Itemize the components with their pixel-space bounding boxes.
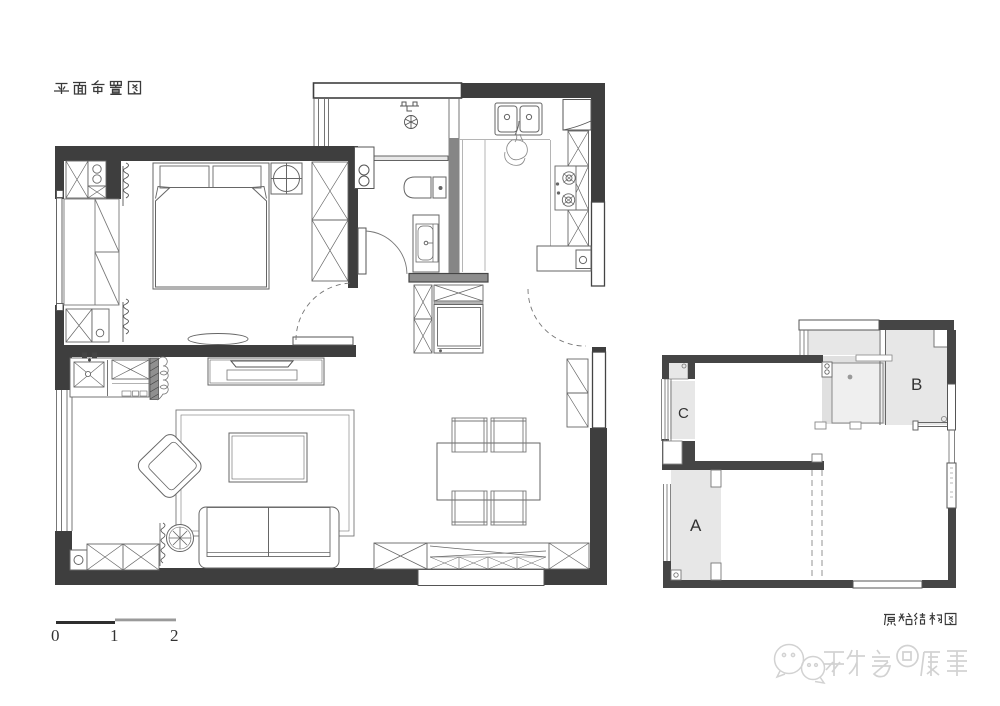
svg-text:C: C	[678, 405, 689, 422]
svg-text:1: 1	[110, 626, 119, 645]
svg-text:0: 0	[51, 626, 60, 645]
svg-text:2: 2	[170, 626, 179, 645]
svg-text:B: B	[911, 375, 922, 394]
svg-text:A: A	[690, 516, 702, 535]
